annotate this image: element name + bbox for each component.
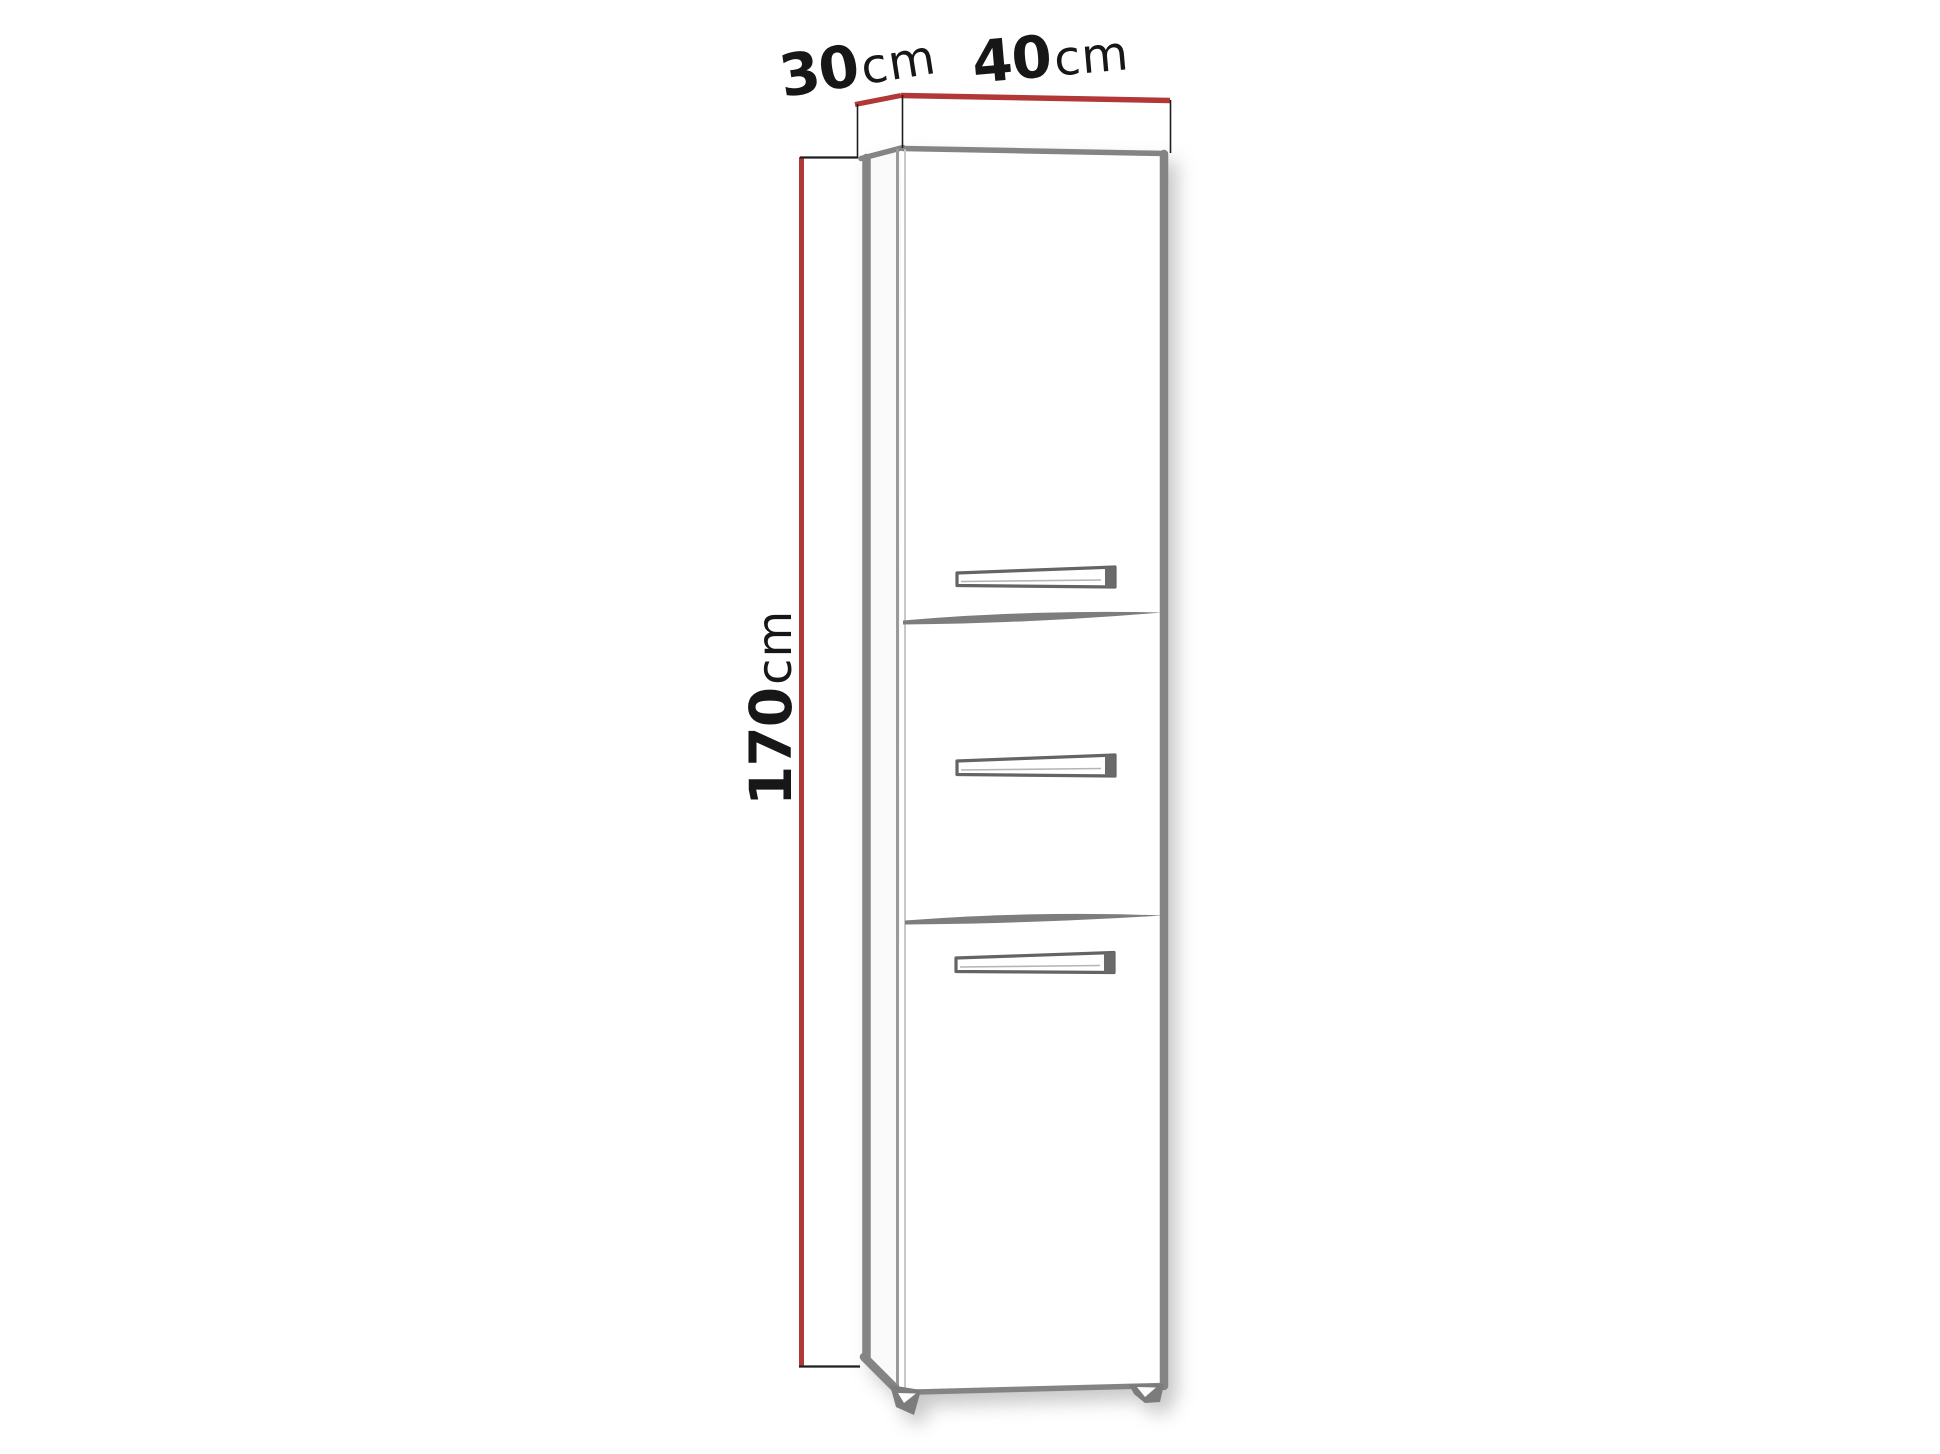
height-value: 170 (737, 688, 805, 806)
right-foot (1129, 1384, 1164, 1403)
depth-unit: cm (857, 29, 940, 96)
width-dimension-line (901, 96, 1170, 101)
depth-value: 30 (775, 31, 863, 110)
width-dimension-label: 40cm (970, 20, 1131, 91)
height-dimension-label: 170cm (742, 610, 800, 806)
cabinet-dimension-drawing (0, 0, 1940, 1454)
width-value: 40 (969, 22, 1053, 97)
height-unit: cm (747, 610, 803, 685)
width-unit: cm (1052, 25, 1132, 87)
cabinet (861, 148, 1164, 1416)
dimension-diagram: 30cm 40cm 170cm (0, 0, 1940, 1454)
left-foot (890, 1385, 921, 1415)
